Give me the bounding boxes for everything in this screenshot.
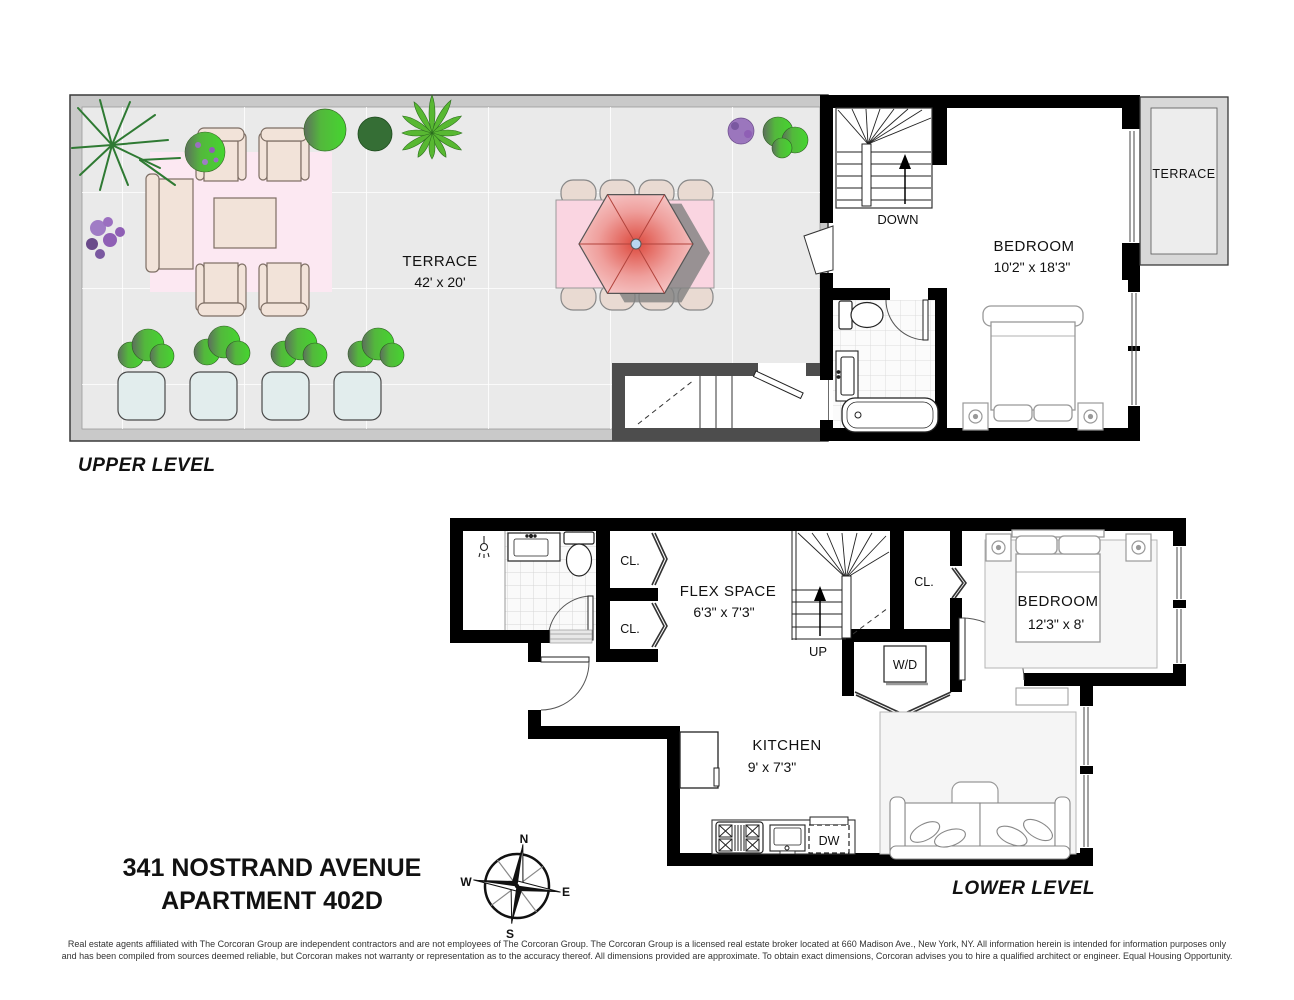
planter	[334, 372, 381, 420]
outdoor-sofa	[146, 171, 193, 275]
upper-bedroom-dims: 10'2" x 18'3"	[994, 259, 1071, 275]
kitchen-sink	[770, 825, 805, 854]
bathroom-sink	[836, 351, 858, 401]
bed	[983, 306, 1083, 421]
refrigerator	[680, 732, 719, 788]
flowering-bush	[185, 132, 225, 172]
compass-north-label: N	[520, 832, 529, 846]
bathtub	[842, 398, 938, 432]
nightstand	[986, 534, 1011, 561]
floor-plan-page: TERRACE 42' x 20'	[0, 0, 1294, 1000]
flex-space-label: FLEX SPACE	[680, 583, 776, 600]
floor-plan-canvas: TERRACE 42' x 20'	[0, 0, 1294, 1000]
lower-bedroom: BEDROOM 12'3" x 8'	[985, 530, 1181, 668]
sofa	[890, 797, 1070, 859]
upper-bedroom-label: BEDROOM	[993, 238, 1074, 255]
closet-label: CL.	[914, 575, 933, 589]
living-windows	[1084, 707, 1088, 847]
dark-bush	[358, 117, 392, 151]
upper-terrace-dims: 42' x 20'	[414, 274, 465, 290]
stair-bulkhead	[612, 363, 828, 441]
broker-disclaimer: Real estate agents affiliated with The C…	[57, 938, 1237, 962]
side-terrace-label: TERRACE	[1152, 167, 1215, 181]
dishwasher-label: DW	[819, 834, 840, 848]
planter	[190, 372, 237, 420]
toilet	[839, 301, 883, 329]
washer-dryer-label: W/D	[893, 658, 917, 672]
closet-label: CL.	[620, 554, 639, 568]
nightstand	[963, 403, 988, 430]
lower-level-plan: CL. CL. FLEX SPACE 6'3" x 7'3"	[450, 518, 1186, 866]
coffee-table	[214, 198, 276, 248]
dishwasher: DW	[809, 817, 849, 853]
vanity-sink	[508, 533, 560, 561]
door-threshold	[550, 630, 592, 643]
upper-building: DOWN	[804, 95, 1140, 441]
nightstand	[1126, 534, 1151, 561]
kitchen-dims: 9' x 7'3"	[748, 759, 796, 775]
property-address: 341 NOSTRAND AVENUE APARTMENT 402D	[72, 852, 472, 918]
kitchen-label: KITCHEN	[752, 737, 821, 754]
terrace-dining-area	[556, 180, 714, 310]
upper-side-terrace: TERRACE	[1122, 95, 1228, 280]
upper-level-title: UPPER LEVEL	[78, 455, 215, 477]
upper-terrace-label: TERRACE	[402, 253, 477, 270]
upper-level-plan: TERRACE 42' x 20'	[70, 95, 1228, 441]
green-bush	[304, 109, 346, 151]
planter	[262, 372, 309, 420]
closet-label: CL.	[620, 622, 639, 636]
upper-bathroom	[833, 300, 938, 432]
disclaimer-line-1: Real estate agents affiliated with The C…	[57, 938, 1237, 950]
planter	[118, 372, 165, 420]
address-line-2: APARTMENT 402D	[72, 885, 472, 918]
up-label: UP	[809, 644, 827, 659]
address-line-1: 341 NOSTRAND AVENUE	[72, 852, 472, 885]
bathroom-door	[923, 300, 928, 340]
flex-space-dims: 6'3" x 7'3"	[693, 604, 754, 620]
terrace-seating-area	[146, 128, 332, 316]
disclaimer-line-2: and has been compiled from sources deeme…	[57, 950, 1237, 962]
lower-bedroom-label: BEDROOM	[1017, 593, 1098, 610]
lower-level-title: LOWER LEVEL	[895, 878, 1095, 900]
compass-east-label: E	[562, 885, 570, 899]
tv-console	[1016, 688, 1068, 705]
lower-bedroom-dims: 12'3" x 8'	[1028, 616, 1084, 632]
armchair	[259, 263, 309, 316]
toilet	[564, 532, 594, 576]
stove	[716, 822, 763, 853]
compass-rose: N S E W	[460, 832, 570, 941]
armchair	[196, 263, 246, 316]
armchair	[259, 128, 309, 181]
nightstand	[1078, 403, 1103, 430]
purple-bush	[728, 118, 754, 144]
down-label: DOWN	[877, 212, 918, 227]
